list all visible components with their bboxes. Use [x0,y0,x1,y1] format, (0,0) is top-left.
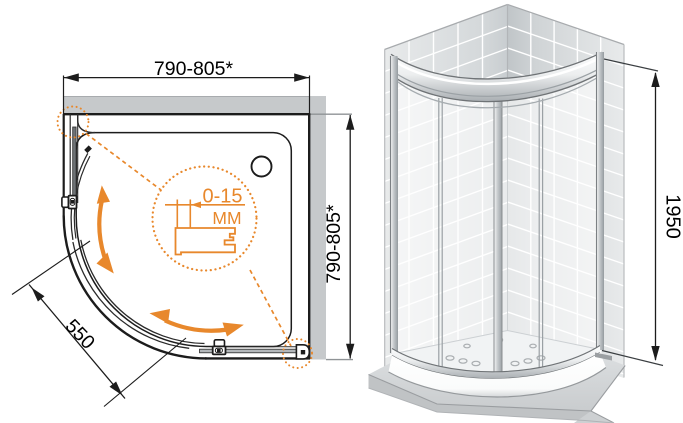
svg-text:1950: 1950 [662,194,683,239]
svg-text:790-805*: 790-805* [154,58,234,80]
svg-text:ММ: ММ [212,208,241,228]
svg-text:550: 550 [61,315,100,354]
svg-text:790-805*: 790-805* [323,204,345,284]
